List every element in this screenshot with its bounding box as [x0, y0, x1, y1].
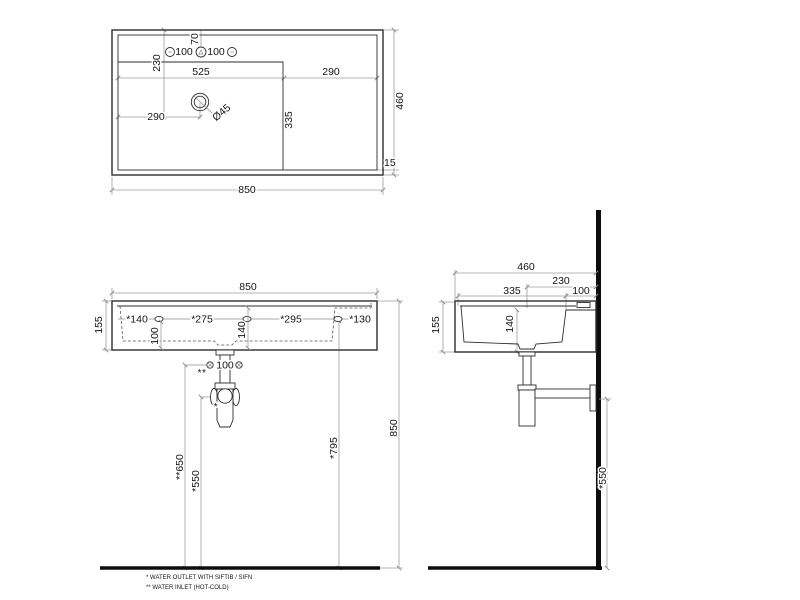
water-inlet-right [236, 362, 242, 368]
outlet-asterisk: * [214, 402, 218, 413]
dim-right-deck: 290 [322, 66, 340, 78]
side-tailpipe-flange [519, 352, 535, 356]
dim-inlet-height: **650 [174, 454, 186, 480]
dim-front-height: 155 [93, 316, 105, 334]
footnotes: * WATER OUTLET WITH SIFTIB / SIFN ** WAT… [146, 575, 252, 591]
dim-wall-to-drain: 230 [552, 275, 570, 287]
dim-drain-from-left: 290 [147, 111, 165, 123]
side-bottle-trap [519, 390, 535, 426]
dim-inner-height: 140 [236, 321, 248, 339]
basin-side-outline [455, 301, 596, 352]
dim-hole-from-rear: 70 [189, 33, 201, 45]
dim-side-height: 155 [430, 316, 442, 334]
top-view: 100 100 70 230 525 290 290 Ø45 335 460 1… [112, 30, 406, 196]
trap-top-nut [215, 383, 235, 389]
dim-bowl-width: 525 [192, 66, 210, 78]
side-tailpipe [523, 356, 531, 385]
technical-drawing-page: 100 100 70 230 525 290 290 Ø45 335 460 1… [0, 0, 800, 600]
dim-hole-height: *795 [328, 437, 340, 459]
dim-side-outlet-height: *550 [597, 467, 609, 489]
washbasin-technical-drawing: 100 100 70 230 525 290 290 Ø45 335 460 1… [0, 0, 800, 600]
basin-outer-outline [112, 30, 383, 175]
side-view: 460 230 335 100 155 140 *550 [428, 210, 611, 570]
dim-hole3-to-edge: *130 [349, 314, 371, 326]
dim-drain-diameter: Ø45 [210, 102, 233, 124]
dim-drain-from-rear: 230 [151, 54, 163, 72]
dim-rim-height: 850 [388, 419, 400, 437]
side-trap-nut [518, 385, 536, 390]
faucet-hole-section [577, 303, 590, 308]
dim-hole-gap-left: 100 [175, 46, 193, 58]
faucet-hole-center [196, 47, 206, 57]
dim-side-inner-depth: 140 [504, 315, 516, 333]
wall [596, 210, 601, 570]
waste-pipe-to-wall [535, 389, 592, 398]
hole-oval-1 [155, 316, 163, 321]
dim-side-bowl-depth: 335 [503, 285, 521, 297]
inlet-asterisks: ** [198, 368, 207, 379]
dim-front-width: 850 [239, 281, 257, 293]
bottle-trap-outlet [218, 389, 232, 403]
front-view: 850 155 *140 *275 *295 *130 100 140 100 … [93, 281, 403, 568]
wall-flange [590, 385, 596, 411]
dim-edge-to-hole1: *140 [126, 314, 148, 326]
dim-side-depth: 460 [517, 261, 535, 273]
tailpipe-flange [216, 350, 234, 355]
hole-oval-2 [243, 316, 251, 321]
dim-hole-drop: 100 [149, 327, 161, 345]
bowl-section-profile [461, 306, 596, 349]
dim-overall-depth: 460 [394, 92, 406, 110]
footnote-outlet: * WATER OUTLET WITH SIFTIB / SIFN [146, 575, 252, 581]
dim-inlet-spacing: 100 [216, 360, 234, 372]
dim-bowl-depth: 335 [283, 111, 295, 129]
dim-hole2-to-hole3: *295 [280, 314, 302, 326]
dim-wall-to-bowl: 100 [572, 285, 590, 297]
dim-overall-width: 850 [238, 184, 256, 196]
dim-outlet-height: *550 [190, 470, 202, 492]
dim-hole-gap-right: 100 [207, 46, 225, 58]
trap-nut-right [233, 389, 240, 406]
water-inlet-left [207, 362, 213, 368]
dim-hole1-to-hole2: *275 [191, 314, 213, 326]
dim-front-rim: 15 [384, 157, 396, 169]
footnote-inlet: ** WATER INLET (HOT-COLD) [146, 585, 229, 591]
hole-oval-3 [334, 316, 342, 321]
